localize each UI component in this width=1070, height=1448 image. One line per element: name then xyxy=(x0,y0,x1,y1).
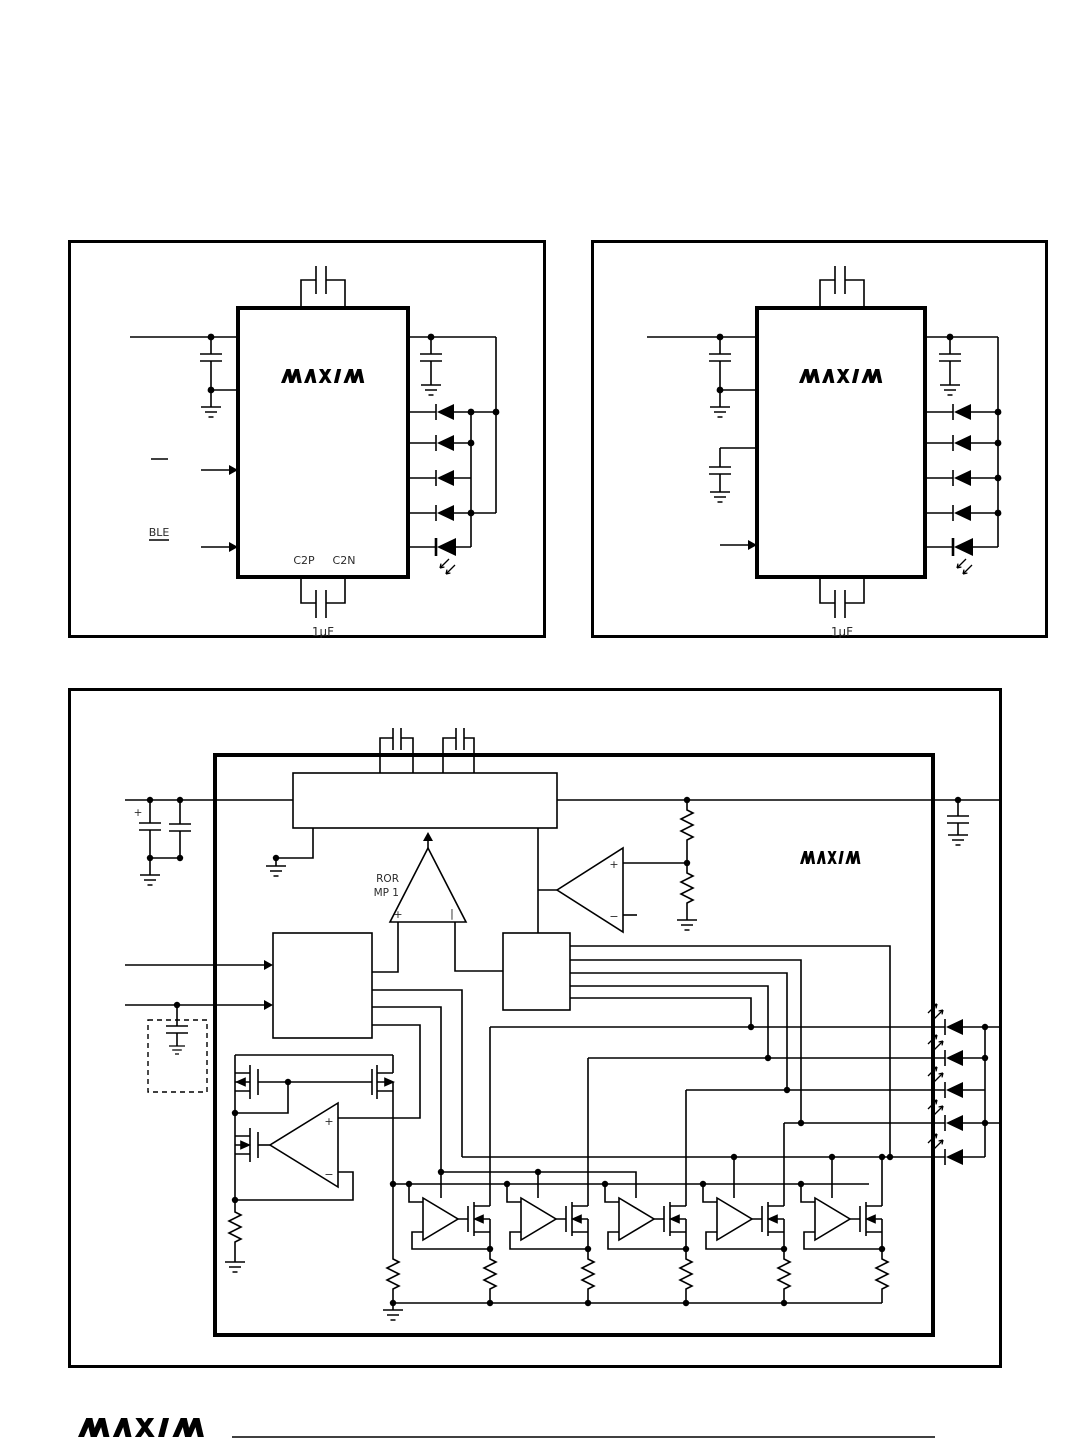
current-sink-stages xyxy=(393,1027,888,1303)
control-input-arrow-1 xyxy=(264,960,273,970)
opamp-plus: + xyxy=(324,1115,333,1128)
page-footer xyxy=(60,1408,1010,1448)
ic-outline xyxy=(757,308,925,577)
cap-value-label: 1µF xyxy=(312,625,334,638)
error-amp-plus: + xyxy=(393,908,402,921)
flying-cap-top xyxy=(301,266,345,308)
error-amp xyxy=(372,840,503,972)
flying-cap-top xyxy=(820,266,864,308)
error-amp-label-1: ROR xyxy=(376,873,399,885)
ic-outline xyxy=(215,755,933,1335)
control-input-arrow-2 xyxy=(264,1000,273,1010)
ic-outline xyxy=(238,308,408,577)
bias-mirror xyxy=(225,1055,869,1320)
input-wiring xyxy=(130,337,238,547)
opamp-minus: − xyxy=(324,1168,333,1181)
error-amp-minus: | xyxy=(450,907,454,920)
flying-cap-bottom xyxy=(820,577,864,618)
figure-frame xyxy=(70,690,1001,1367)
cap-value-label: 1µF xyxy=(831,625,853,638)
functional-diagram: + ROR MP 1 + | + − xyxy=(68,688,1002,1368)
maxim-logo xyxy=(281,369,364,383)
error-amp-label-2: MP 1 xyxy=(374,887,399,899)
cap-polarity-plus: + xyxy=(134,807,143,819)
pin-label-c2n: C2N xyxy=(333,554,356,567)
flying-cap-bottom xyxy=(301,577,345,618)
maxim-logo xyxy=(799,369,882,383)
decoder-block xyxy=(503,933,570,1010)
charge-pump-block xyxy=(293,773,557,828)
typical-circuit-1: BLE C2P C2N 1µF xyxy=(68,240,546,638)
decoder-output-routing xyxy=(570,946,890,1157)
control-block xyxy=(273,933,372,1038)
control-inputs xyxy=(125,965,265,1054)
supply-input-wiring xyxy=(125,800,313,885)
comparator-minus: − xyxy=(609,910,618,923)
ble-label: BLE xyxy=(149,526,170,539)
input-wiring xyxy=(647,337,757,545)
led-row-wiring xyxy=(490,1004,1002,1165)
junction-dots xyxy=(147,797,1002,1306)
maxim-logo-footer xyxy=(78,1418,204,1437)
optional-cap-box xyxy=(148,1020,207,1092)
typical-circuit-2: 1µF xyxy=(591,240,1048,638)
output-wiring xyxy=(925,337,998,574)
error-amp-arrow xyxy=(423,832,433,841)
pin-label-c2p: C2P xyxy=(293,554,315,567)
flying-caps xyxy=(380,728,474,773)
junction-dots xyxy=(208,334,500,517)
control-output-routing xyxy=(338,990,945,1198)
output-wiring xyxy=(408,337,496,574)
comparator-plus: + xyxy=(609,858,618,871)
maxim-logo xyxy=(800,851,860,864)
